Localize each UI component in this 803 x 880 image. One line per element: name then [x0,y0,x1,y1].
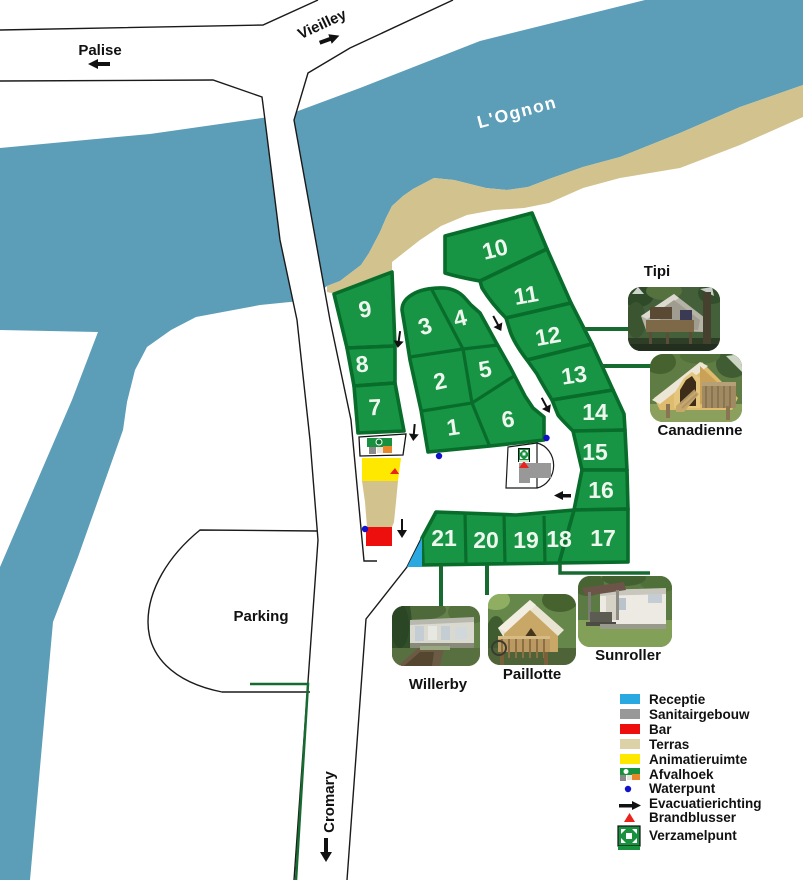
svg-text:18: 18 [546,526,572,552]
svg-text:Animatieruimte: Animatieruimte [649,752,748,767]
svg-text:Bar: Bar [649,722,672,737]
svg-text:Tipi: Tipi [644,263,670,280]
svg-text:7: 7 [368,394,382,421]
svg-text:Verzamelpunt: Verzamelpunt [649,828,737,843]
svg-text:21: 21 [431,525,457,551]
svg-text:8: 8 [354,350,369,377]
svg-text:Willerby: Willerby [409,676,468,693]
svg-text:Waterpunt: Waterpunt [649,781,716,796]
svg-text:16: 16 [588,477,614,503]
svg-text:Afvalhoek: Afvalhoek [649,767,714,782]
svg-text:14: 14 [582,399,608,425]
svg-text:Terras: Terras [649,737,689,752]
svg-text:11: 11 [512,280,541,310]
svg-text:Canadienne: Canadienne [657,422,742,439]
svg-text:Parking: Parking [233,608,288,625]
svg-text:Receptie: Receptie [649,692,706,707]
svg-text:13: 13 [560,360,589,389]
svg-text:15: 15 [582,439,608,465]
svg-text:Brandblusser: Brandblusser [649,810,737,825]
svg-text:Sunroller: Sunroller [595,647,661,664]
svg-text:Palise: Palise [78,42,121,59]
svg-text:19: 19 [513,527,539,553]
svg-text:Paillotte: Paillotte [503,666,561,683]
svg-text:Sanitairgebouw: Sanitairgebouw [649,707,750,722]
svg-text:20: 20 [473,527,499,553]
svg-text:12: 12 [533,321,563,351]
svg-text:Cromary: Cromary [321,771,338,833]
svg-text:17: 17 [590,525,616,551]
svg-text:Evacuatierichting: Evacuatierichting [649,796,762,811]
